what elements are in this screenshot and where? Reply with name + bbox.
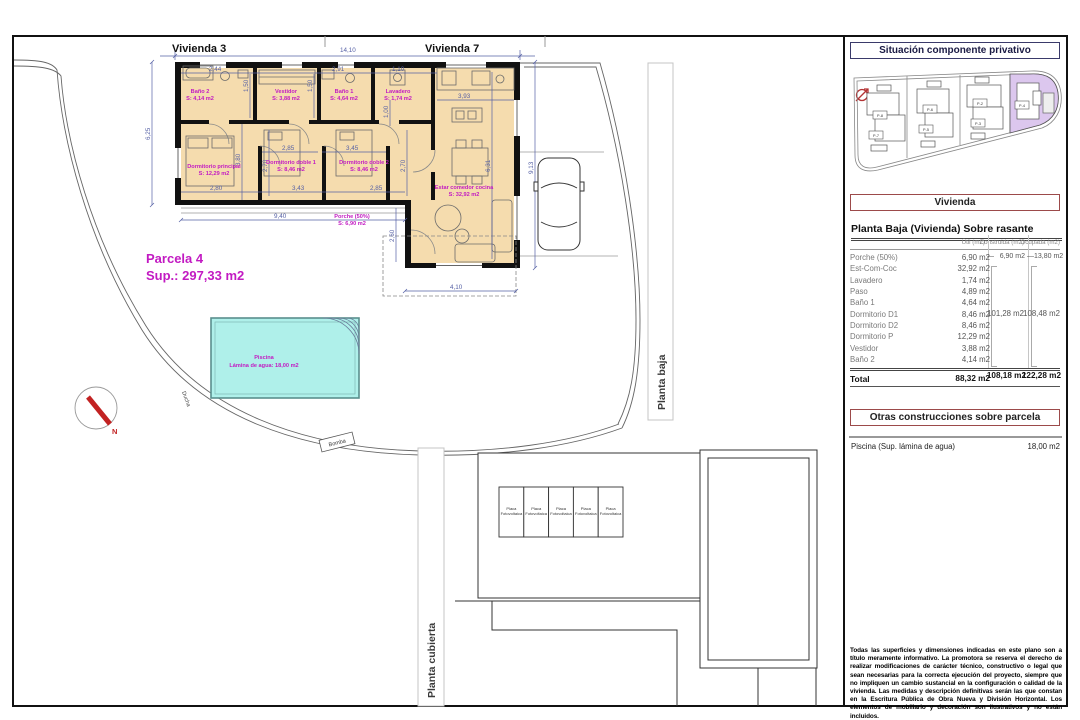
planta-cubierta-strip: Planta cubierta [418, 448, 444, 706]
plot-chip: P-8 [877, 114, 883, 118]
dash: — [987, 253, 994, 260]
situacion-header: Situación componente privativo [850, 42, 1060, 59]
room-name: Baño 2 [191, 89, 210, 95]
dim-label: 3,93 [458, 93, 471, 100]
dim-label: 6,25 [145, 127, 152, 140]
car [534, 158, 584, 250]
row-label: Baño 1 [850, 298, 928, 307]
row-util: 6,90 m2 [928, 253, 990, 262]
plot-chip: P-3 [975, 122, 981, 126]
dim-label: 9,13 [528, 161, 535, 174]
porche-ocupada: 13,80 m2 [1034, 253, 1063, 260]
table-row: Dormitorio P12,29 m2 [850, 331, 1060, 342]
room-name: Estar comedor cocina [435, 185, 494, 191]
site-inset-map: P-8 P-7 P-6 P-5 P-2 P-3 P-4 [847, 63, 1065, 193]
row-util: 12,29 m2 [928, 332, 990, 341]
placa-label: Fotovoltaica [600, 511, 622, 516]
placa-label: Fotovoltaica [550, 511, 572, 516]
room-area: S: 3,88 m2 [272, 96, 300, 102]
pool: Piscina Lámina de agua: 18,00 m2 [211, 318, 359, 398]
dim-label: 3,45 [346, 145, 359, 152]
dim-label: 2,44 [209, 66, 222, 73]
placa-label: Fotovoltaica [525, 511, 547, 516]
room-area: S: 8,46 m2 [277, 167, 305, 173]
plot-chip: P-2 [977, 102, 983, 106]
row-label: Est-Com-Coc [850, 264, 928, 273]
row-label: Vestidor [850, 344, 928, 353]
plot-chip: P-4 [1019, 104, 1025, 108]
table-row: Baño 24,14 m2 [850, 354, 1060, 365]
otras-header: Otras construcciones sobre parcela [850, 409, 1060, 426]
row-util: 1,74 m2 [928, 276, 990, 285]
table-row: Paso4,89 m2 [850, 286, 1060, 297]
room-area: S: 4,14 m2 [186, 96, 214, 102]
parcela-title: Parcela 4 [146, 251, 204, 266]
row-label: Paso [850, 287, 928, 296]
north-compass: N [75, 387, 117, 436]
dim-label: 9,40 [274, 213, 287, 220]
dim-label: 1,50 [243, 79, 250, 92]
drawing-sheet: 14,10 2,44 2,91 1,10 3,93 1,50 1,50 1,00… [0, 0, 1080, 720]
info-panel: Situación componente privativo P-8 [843, 35, 1068, 707]
dim-label: 6,31 [485, 159, 492, 172]
row-label: Porche (50%) [850, 253, 928, 262]
dim-label: 14,10 [340, 47, 356, 54]
piscina-label: Piscina (Sup. lámina de agua) [851, 442, 955, 451]
plot-chip: P-7 [873, 134, 879, 138]
vivienda-header: Vivienda [850, 194, 1060, 211]
parcela-area: Sup.: 297,33 m2 [146, 268, 244, 283]
col-header-ocupada: Ocupada (m2) [1017, 239, 1060, 246]
ducha-label: Ducha [180, 391, 191, 409]
pool-area: Lámina de agua: 18,00 m2 [229, 363, 298, 369]
planta-baja-strip: Planta baja [648, 63, 673, 420]
vivienda7-title: Vivienda 7 [425, 43, 479, 55]
dim-label: 1,50 [307, 79, 314, 92]
section-divider [849, 436, 1062, 438]
north-letter: N [112, 427, 117, 436]
row-label: Dormitorio P [850, 332, 928, 341]
vivienda3-title: Vivienda 3 [172, 43, 226, 55]
disclaimer-text: Todas las superficies y dimensiones indi… [850, 647, 1062, 720]
row-util: 3,88 m2 [928, 344, 990, 353]
dim-label: 2,91 [332, 66, 345, 73]
row-label: Baño 2 [850, 355, 928, 364]
dim-label: 2,70 [400, 159, 407, 172]
room-name: Dormitorio doble 2 [339, 160, 389, 166]
plot-chip: P-5 [923, 128, 929, 132]
row-util: 4,89 m2 [928, 287, 990, 296]
dim-label: 4,10 [450, 284, 463, 291]
dim-label: 2,60 [389, 229, 396, 242]
row-util: 4,64 m2 [928, 298, 990, 307]
room-name: Vestidor [275, 89, 298, 95]
row-util: 8,46 m2 [928, 321, 990, 330]
total-ocupada: 122,28 m2 [993, 371, 1061, 380]
row-util: 4,14 m2 [928, 355, 990, 364]
room-name: Baño 1 [335, 89, 354, 95]
table-row: Lavadero1,74 m2 [850, 275, 1060, 286]
room-area: S: 6,90 m2 [338, 221, 366, 227]
row-util: 32,92 m2 [928, 264, 990, 273]
porche-construida: 6,90 m2 [1000, 253, 1025, 260]
room-area: S: 4,64 m2 [330, 96, 358, 102]
table-row: Est-Com-Coc32,92 m2 [850, 263, 1060, 274]
pool-name: Piscina [254, 355, 274, 361]
placa-label: Fotovoltaica [575, 511, 597, 516]
plot-chip: P-6 [927, 108, 933, 112]
table-row: Baño 14,64 m2 [850, 297, 1060, 308]
ocupada-group-value: 108,48 m2 [991, 309, 1060, 318]
room-name: Porche (50%) [334, 214, 370, 220]
room-area: S: 12,29 m2 [199, 171, 230, 177]
inset-buildings [867, 77, 1054, 151]
dim-label: 3,43 [292, 185, 305, 192]
planta-baja-label: Planta baja [656, 354, 668, 410]
total-label: Total [850, 374, 928, 384]
placa-label: Fotovoltaica [501, 511, 523, 516]
dim-label: 1,10 [392, 66, 405, 73]
room-area: S: 1,74 m2 [384, 96, 412, 102]
dim-label: 2,85 [370, 185, 383, 192]
piscina-value: 18,00 m2 [991, 442, 1060, 451]
dim-label: 2,80 [210, 185, 223, 192]
inset-compass-icon [856, 89, 868, 101]
porche-construida-cell: —6,90 m2 [987, 253, 1025, 260]
porche-ocupada-cell: —13,80 m2 [1027, 253, 1061, 260]
room-area: S: 8,46 m2 [350, 167, 378, 173]
north-needle [88, 397, 110, 424]
room-name: Lavadero [386, 89, 411, 95]
room-name: Dormitorio doble 1 [266, 160, 316, 166]
room-area: S: 32,92 m2 [449, 192, 480, 198]
row-label: Lavadero [850, 276, 928, 285]
table-row: Vestidor3,88 m2 [850, 342, 1060, 353]
planta-cubierta-label: Planta cubierta [426, 623, 438, 698]
dim-label: 2,85 [282, 145, 295, 152]
solar-panels: PlacaFotovoltaica PlacaFotovoltaica Plac… [499, 487, 623, 537]
dash: — [1027, 253, 1034, 260]
row-label: Dormitorio D1 [850, 310, 928, 319]
dim-label: 1,00 [383, 105, 390, 118]
table-row: Dormitorio D28,46 m2 [850, 320, 1060, 331]
room-name: Dormitorio principal [187, 164, 241, 170]
row-label: Dormitorio D2 [850, 321, 928, 330]
